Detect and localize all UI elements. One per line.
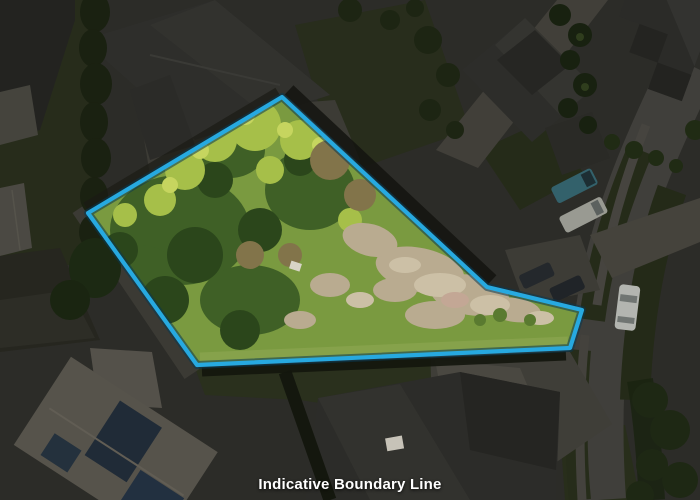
caption-indicative-boundary-line: Indicative Boundary Line	[0, 476, 700, 493]
aerial-photo: Indicative Boundary Line	[0, 0, 700, 500]
aerial-scene	[0, 0, 700, 500]
